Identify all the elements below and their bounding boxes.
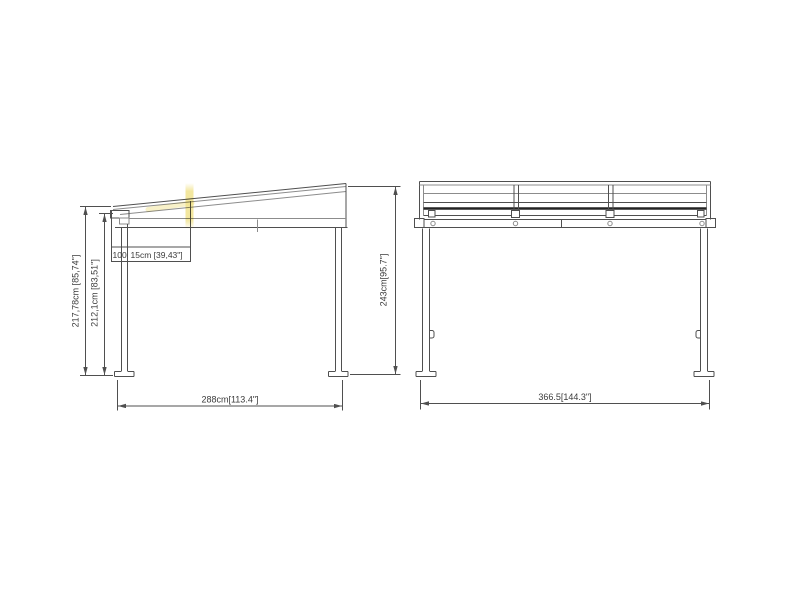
technical-drawing: 217,78cm [85,74"] 212,1cm [83,51"] 100 1… bbox=[0, 0, 800, 600]
dim-label-roof-part2: 15cm [39,43"] bbox=[131, 250, 183, 260]
front-left-post bbox=[423, 229, 430, 372]
roof-frame-inner bbox=[420, 185, 711, 216]
dim-label-width-overall: 366.5[144.3"] bbox=[538, 392, 591, 402]
front-left-base-plate bbox=[416, 372, 436, 377]
bracket-block-2 bbox=[512, 211, 520, 218]
dim-label-depth: 288cm[113.4"] bbox=[201, 395, 258, 405]
side-view-structure bbox=[111, 184, 349, 377]
front-right-post bbox=[701, 229, 708, 372]
dim-label-height-outer: 217,78cm [85,74"] bbox=[71, 255, 81, 328]
front-right-base-plate bbox=[694, 372, 714, 377]
front-view-structure bbox=[415, 182, 716, 377]
bolt-1 bbox=[431, 221, 435, 225]
gutter-step bbox=[120, 218, 130, 224]
highlight-band bbox=[186, 183, 194, 229]
side-left-base-plate bbox=[115, 372, 135, 377]
roof-frame-outer bbox=[420, 182, 711, 220]
dimension-depth: 288cm[113.4"] bbox=[118, 380, 343, 411]
highlight-roof-streak bbox=[148, 203, 192, 210]
header-beam bbox=[424, 220, 706, 228]
dimension-height-rear: 243cm[95.7"] bbox=[348, 187, 401, 375]
post-hook-right bbox=[696, 331, 701, 339]
bracket-block-1 bbox=[429, 211, 436, 218]
header-beam-cap-right bbox=[706, 219, 716, 228]
side-right-base-plate bbox=[329, 372, 349, 377]
header-beam-cap-left bbox=[415, 219, 425, 228]
dim-label-roof-part1: 100 bbox=[113, 250, 127, 260]
post-hook-left bbox=[430, 331, 435, 339]
highlight-marker bbox=[148, 183, 194, 229]
bolt-4 bbox=[700, 221, 704, 225]
front-view: 366.5[144.3"] bbox=[415, 182, 716, 410]
extension-line bbox=[348, 187, 401, 375]
dimension-height-inner: 212,1cm [83,51"] bbox=[90, 214, 114, 376]
bracket-block-4 bbox=[698, 211, 705, 218]
bolt-3 bbox=[608, 221, 612, 225]
side-view: 217,78cm [85,74"] 212,1cm [83,51"] 100 1… bbox=[71, 183, 401, 411]
dim-label-height-rear: 243cm[95.7"] bbox=[379, 254, 389, 307]
side-right-post bbox=[336, 228, 342, 372]
roof-slope-second-line bbox=[113, 187, 346, 210]
bracket-block-3 bbox=[606, 211, 614, 218]
side-left-post bbox=[122, 224, 128, 371]
dimension-width-overall: 366.5[144.3"] bbox=[421, 380, 710, 410]
dim-label-height-inner: 212,1cm [83,51"] bbox=[90, 259, 100, 327]
bolt-2 bbox=[513, 221, 517, 225]
drawing-canvas: 217,78cm [85,74"] 212,1cm [83,51"] 100 1… bbox=[0, 0, 800, 600]
